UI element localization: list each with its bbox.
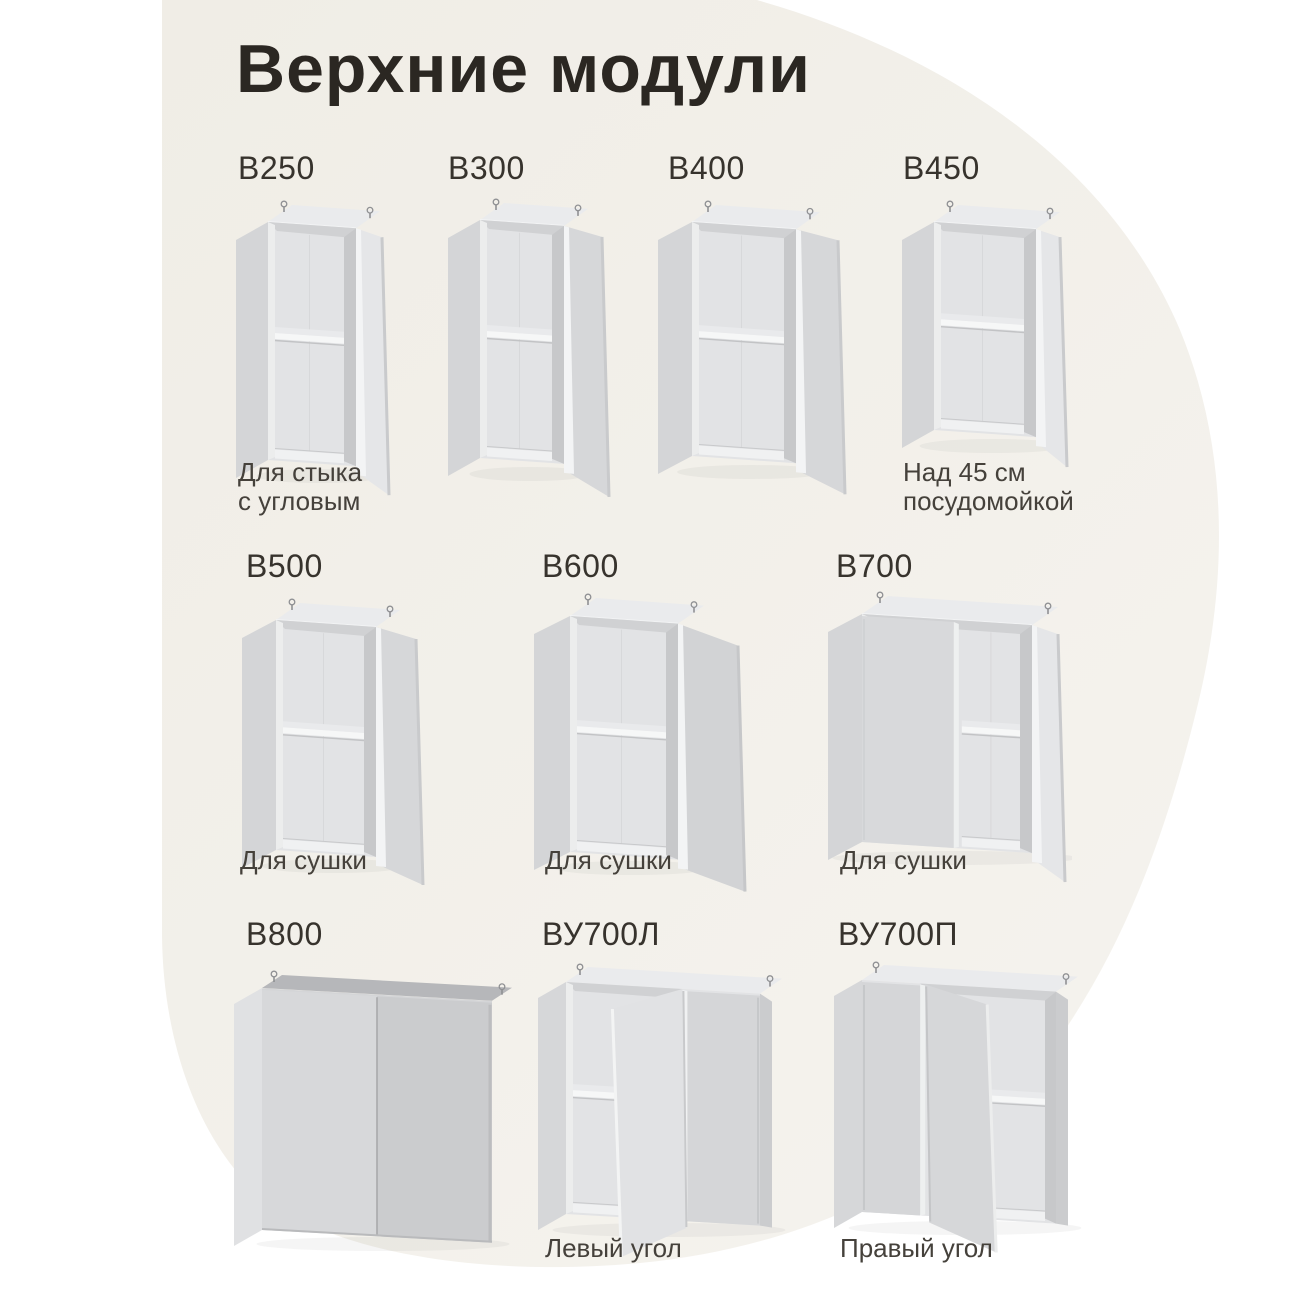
module-label-b300: В300 <box>448 150 525 187</box>
module-label-b400: В400 <box>668 150 745 187</box>
cabinet-illustration-b450 <box>896 196 1076 470</box>
module-caption-b450: Над 45 см посудомойкой <box>903 458 1074 516</box>
module-caption-b700: Для сушки <box>840 846 967 875</box>
module-label-b500: В500 <box>246 548 323 585</box>
module-label-vu700l: ВУ700Л <box>542 916 660 953</box>
cabinet-illustration-vu700p <box>828 954 1086 1260</box>
cabinet-illustration-b300 <box>442 194 612 499</box>
module-caption-b250: Для стыка с угловым <box>238 458 362 516</box>
cabinet-illustration-b500 <box>236 594 426 886</box>
cabinet-illustration-b800 <box>228 958 518 1256</box>
module-label-b600: В600 <box>542 548 619 585</box>
cabinet-illustration-vu700l <box>532 956 790 1258</box>
module-caption-vu700l: Левый угол <box>545 1234 682 1263</box>
cabinet-illustration-b400 <box>652 196 847 496</box>
module-label-b700: В700 <box>836 548 913 585</box>
module-caption-b500: Для сушки <box>240 846 367 875</box>
module-label-b800: В800 <box>246 916 323 953</box>
module-label-b250: В250 <box>238 150 315 187</box>
module-caption-b600: Для сушки <box>545 846 672 875</box>
cabinet-illustration-b700 <box>822 588 1072 883</box>
module-label-b450: В450 <box>903 150 980 187</box>
page-canvas: Верхние модули В250 В300 В400 В450 Для с… <box>0 0 1300 1300</box>
module-label-vu700p: ВУ700П <box>838 916 958 953</box>
cabinet-illustration-b250 <box>230 196 400 496</box>
page-title: Верхние модули <box>236 30 811 108</box>
module-caption-vu700p: Правый угол <box>840 1234 993 1263</box>
